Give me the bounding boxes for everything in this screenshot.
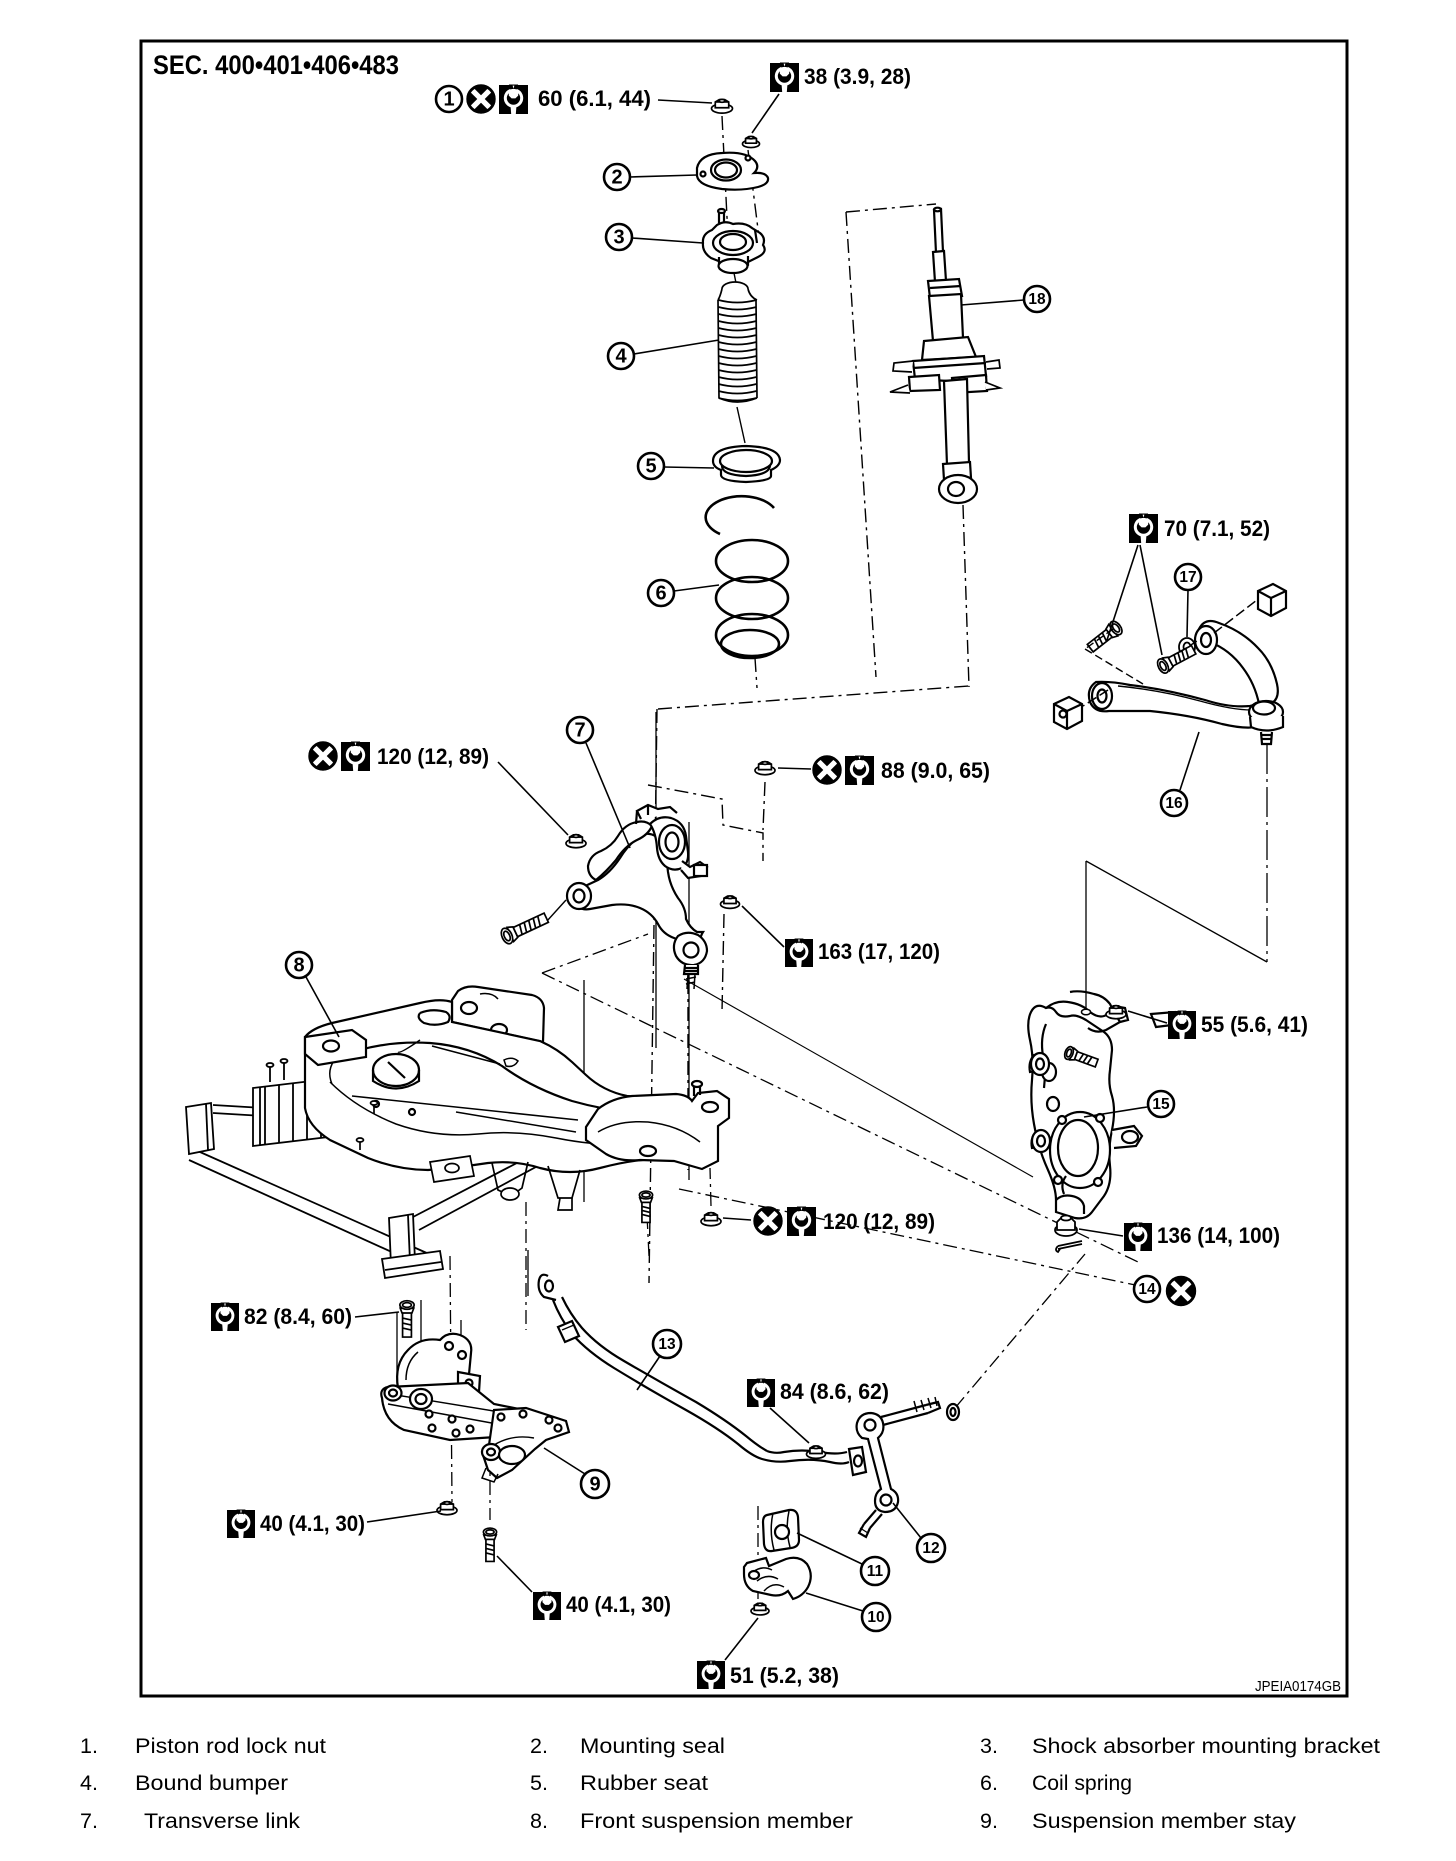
svg-text:2: 2	[611, 167, 622, 189]
svg-text:40 (4.1, 30): 40 (4.1, 30)	[566, 1592, 671, 1617]
svg-text:13: 13	[658, 1336, 676, 1353]
svg-text:1: 1	[443, 89, 454, 111]
svg-text:5: 5	[645, 456, 656, 478]
svg-text:15: 15	[1152, 1096, 1170, 1113]
svg-text:6.: 6.	[980, 1771, 998, 1795]
svg-text:60 (6.1, 44): 60 (6.1, 44)	[538, 86, 651, 111]
svg-text:5.: 5.	[530, 1771, 548, 1795]
svg-text:SEC. 400•401•406•483: SEC. 400•401•406•483	[153, 50, 399, 80]
svg-text:Transverse link: Transverse link	[144, 1809, 300, 1833]
svg-text:3: 3	[613, 227, 624, 249]
svg-text:70 (7.1, 52): 70 (7.1, 52)	[1164, 516, 1270, 541]
svg-text:Piston rod lock nut: Piston rod lock nut	[135, 1734, 326, 1758]
svg-text:16: 16	[1165, 795, 1183, 812]
svg-text:11: 11	[867, 1563, 884, 1580]
svg-text:7: 7	[574, 720, 585, 742]
svg-text:Shock absorber mounting bracke: Shock absorber mounting bracket	[1032, 1734, 1380, 1758]
svg-text:14: 14	[1138, 1281, 1156, 1298]
svg-text:3.: 3.	[980, 1734, 998, 1758]
svg-text:Suspension member stay: Suspension member stay	[1032, 1809, 1296, 1833]
svg-text:Rubber seat: Rubber seat	[580, 1771, 708, 1795]
svg-text:1.: 1.	[80, 1734, 98, 1758]
svg-text:9: 9	[589, 1474, 600, 1496]
svg-text:2.: 2.	[530, 1734, 548, 1758]
svg-text:136 (14, 100): 136 (14, 100)	[1157, 1223, 1280, 1248]
svg-text:8.: 8.	[530, 1809, 548, 1833]
svg-text:Front suspension member: Front suspension member	[580, 1809, 853, 1833]
svg-text:18: 18	[1028, 291, 1046, 308]
svg-text:163 (17, 120): 163 (17, 120)	[818, 939, 940, 964]
svg-text:55 (5.6, 41): 55 (5.6, 41)	[1201, 1012, 1308, 1037]
svg-text:40 (4.1, 30): 40 (4.1, 30)	[260, 1511, 365, 1536]
svg-text:120 (12, 89): 120 (12, 89)	[377, 744, 489, 769]
svg-text:4.: 4.	[80, 1771, 98, 1795]
svg-text:120 (12, 89): 120 (12, 89)	[823, 1209, 935, 1234]
svg-text:8: 8	[293, 955, 304, 977]
svg-text:88 (9.0, 65): 88 (9.0, 65)	[881, 758, 990, 783]
svg-text:84 (8.6, 62): 84 (8.6, 62)	[780, 1379, 889, 1404]
svg-text:9.: 9.	[980, 1809, 998, 1833]
svg-text:Coil spring: Coil spring	[1032, 1771, 1132, 1795]
svg-text:82 (8.4, 60): 82 (8.4, 60)	[244, 1304, 352, 1329]
svg-text:JPEIA0174GB: JPEIA0174GB	[1255, 1678, 1341, 1695]
svg-text:10: 10	[867, 1609, 884, 1626]
svg-text:51 (5.2, 38): 51 (5.2, 38)	[730, 1663, 839, 1688]
svg-text:Mounting seal: Mounting seal	[580, 1734, 725, 1758]
svg-text:17: 17	[1179, 569, 1196, 586]
svg-text:6: 6	[655, 583, 666, 605]
svg-text:7.: 7.	[80, 1809, 98, 1833]
svg-text:12: 12	[922, 1540, 939, 1557]
svg-text:4: 4	[615, 346, 627, 368]
svg-text:Bound bumper: Bound bumper	[135, 1771, 288, 1795]
svg-text:38 (3.9, 28): 38 (3.9, 28)	[804, 64, 911, 89]
